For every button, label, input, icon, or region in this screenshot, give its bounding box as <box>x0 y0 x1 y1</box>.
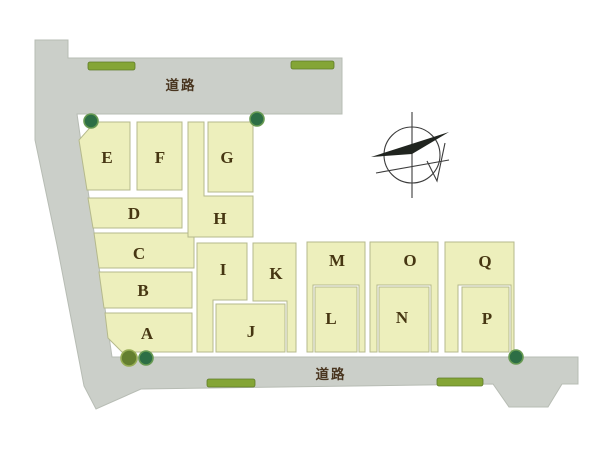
lot-label-F: F <box>155 148 165 167</box>
north-arrow-icon <box>371 112 449 198</box>
north-arrow-pointer <box>371 132 449 157</box>
lot-label-L: L <box>325 309 336 328</box>
lot-label-N: N <box>396 308 409 327</box>
road-label-top: 道路 <box>166 77 197 93</box>
lot-label-Q: Q <box>478 252 491 271</box>
lot-label-C: C <box>133 244 145 263</box>
lot-label-G: G <box>220 148 233 167</box>
lot-label-P: P <box>482 309 492 328</box>
site-plan-canvas: ABCDEFGHIJKLMNOPQ 道路 道路 <box>0 0 600 449</box>
lot-label-I: I <box>220 260 227 279</box>
shrub-icon <box>139 351 153 365</box>
hedge-strip <box>291 61 334 69</box>
lot-label-E: E <box>101 148 112 167</box>
lot-label-K: K <box>269 264 283 283</box>
shrub-icon <box>121 350 137 366</box>
hedge-strip <box>437 378 483 386</box>
lot-label-A: A <box>141 324 154 343</box>
shrub-icon <box>250 112 264 126</box>
lot-label-H: H <box>213 209 226 228</box>
hedge-strip <box>207 379 255 387</box>
road-label-bottom: 道路 <box>316 366 347 382</box>
site-plan: ABCDEFGHIJKLMNOPQ 道路 道路 <box>0 0 600 449</box>
shrub-icon <box>84 114 98 128</box>
lot-label-O: O <box>403 251 416 270</box>
lots-layer: ABCDEFGHIJKLMNOPQ <box>79 122 514 352</box>
lot-label-M: M <box>329 251 345 270</box>
lot-label-J: J <box>247 322 256 341</box>
lot-label-D: D <box>128 204 140 223</box>
shrub-icon <box>509 350 523 364</box>
lot-label-B: B <box>137 281 148 300</box>
hedge-strip <box>88 62 135 70</box>
